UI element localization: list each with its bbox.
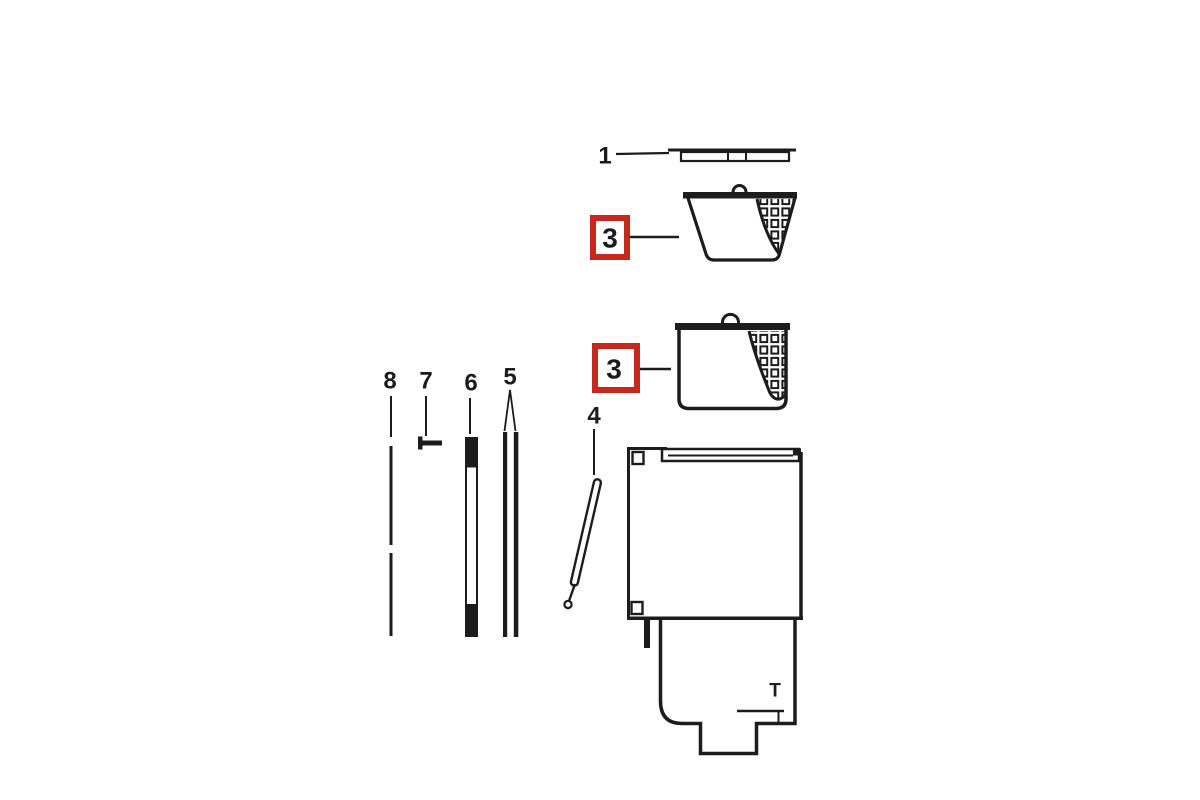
callout-3-bottom: 3 (595, 346, 671, 390)
parts-diagram-canvas: 1 3 3 8 7 6 (0, 0, 1200, 800)
part-3-basket-bottom (675, 314, 790, 408)
basket-top-rim (683, 192, 797, 199)
part-1-leader-line (616, 153, 669, 154)
housing-top-left-notch (633, 452, 644, 464)
part-5-leader-right (510, 390, 516, 431)
housing-upper-box (627, 447, 803, 620)
tube-top-cap (466, 438, 478, 468)
part-5-label: 5 (503, 364, 516, 391)
part-3-top-label: 3 (602, 223, 618, 254)
part-6-tube: 6 (464, 370, 477, 637)
throat-label: T (769, 681, 781, 702)
housing-bottom-left-notch (632, 602, 643, 614)
part-8-rod: 8 (383, 368, 396, 637)
part-1-label: 1 (598, 143, 611, 170)
part-5-rod-pair: 5 (503, 364, 518, 638)
part-8-label: 8 (383, 368, 396, 395)
callout-3-top: 3 (593, 218, 679, 257)
part-5-leader-left (505, 390, 511, 431)
basket-top-handle (733, 186, 746, 192)
pin-cap (418, 437, 423, 450)
rod-pair-right (514, 432, 519, 637)
part-7-pin: 7 (418, 368, 442, 450)
part-3-basket-top (683, 186, 797, 260)
part-1-lid (668, 150, 796, 161)
handle-blade (570, 479, 601, 587)
part-6-label: 6 (464, 370, 477, 397)
handle-shaft (569, 584, 575, 601)
basket-bottom-rim (675, 323, 790, 330)
tube-bottom-cap (466, 604, 478, 636)
handle-ball-end (564, 601, 571, 608)
callout-1: 1 (598, 143, 669, 170)
housing-rim-end-tab (793, 449, 801, 456)
part-7-label: 7 (419, 368, 432, 395)
part-3-bottom-label: 3 (606, 354, 622, 385)
part-4-label: 4 (587, 403, 601, 430)
part-4-handle: 4 (564, 403, 601, 609)
lower-box-left-tab (644, 620, 650, 648)
basket-top-perforation (757, 199, 795, 255)
rod-pair-left (503, 432, 507, 637)
lid-body (681, 152, 789, 161)
housing-lower-box: T (644, 619, 795, 754)
parts-diagram-svg: 1 3 3 8 7 6 (0, 0, 1200, 800)
